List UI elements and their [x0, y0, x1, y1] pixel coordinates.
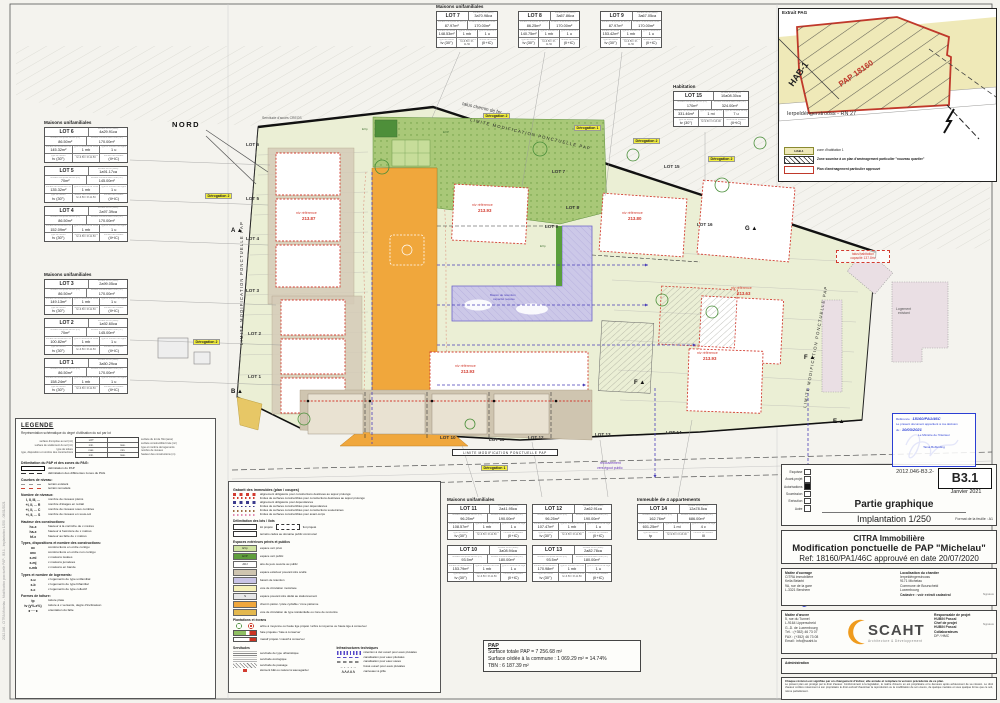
- plan-label: niv référence: [731, 286, 752, 290]
- table-value: 180.00m²: [489, 558, 526, 562]
- table-value: (II+IC): [561, 41, 578, 45]
- table-group-title: Immeuble de 4 appartements: [637, 497, 717, 502]
- pag-panel: HAB-1 PAP 18160 Ierpeldéngerstrooss - RN…: [778, 8, 997, 182]
- table-value: 145.00m²: [88, 179, 127, 183]
- table-group-title: Habitation: [673, 84, 749, 89]
- legend-symbol: oc: [21, 546, 45, 550]
- table-value: 1 u: [101, 300, 126, 304]
- table-value: 108.57m²: [449, 525, 472, 529]
- table-value: 3a08.94ca: [491, 549, 525, 553]
- limite-pap-boxed-label: LIMITE MODIFICATION PONCTUELLE PAP: [452, 449, 558, 456]
- legende-schema: surface d'emprise au sol (m²)surface de …: [21, 437, 210, 458]
- plan-label: EVp: [540, 244, 546, 248]
- legend-symbol: tp: [21, 599, 45, 603]
- legend-symbol: +I, II, ... R: [21, 503, 45, 507]
- table-value: 2a41.95ca: [491, 507, 525, 511]
- legende-panel: LEGENDE Représentation schématique du de…: [15, 418, 216, 699]
- table-value: 1 u: [587, 525, 610, 529]
- legend-symbol: x-u: [21, 578, 45, 582]
- table-value: 7 u: [725, 112, 747, 116]
- table-value: 170.00m²: [633, 24, 661, 28]
- lot-table: LOT 10surface du lot (ares)3a08.94casurf…: [447, 545, 527, 582]
- playground-green-square: [375, 120, 397, 137]
- table-value: 93.5m²: [534, 558, 571, 562]
- table-value: LOT 14: [639, 507, 678, 513]
- legend-symbol: [233, 514, 257, 516]
- doc-subtitle: Implantation 1/250: [834, 514, 954, 524]
- table-value: 1 mb: [475, 525, 498, 529]
- legend-symbol: x-mi: [21, 556, 45, 560]
- table-value: (II+IC): [101, 236, 126, 240]
- pap-summary: PAP Surface totale PAP = 7 256.68 m² Sur…: [483, 640, 641, 672]
- table-value: LOT 1: [46, 361, 87, 367]
- legend-item: EVPespace vert public: [233, 553, 436, 560]
- legend-symbol: [233, 510, 257, 512]
- table-value: LOT 9: [602, 14, 631, 20]
- table-value: (II+IC): [101, 197, 126, 201]
- table-value: 149.13m²: [46, 300, 71, 304]
- table-value: (II+IC): [101, 349, 126, 353]
- legend-symbol: [233, 501, 257, 504]
- table-value: tv (30°): [449, 576, 472, 580]
- legend-symbol: hc-x: [21, 525, 45, 529]
- legend-symbol: [233, 506, 257, 508]
- table-value: tv (30°): [438, 41, 455, 45]
- ministry-stamp: Référence : 18160/PA1/46C Le présent doc…: [892, 413, 976, 467]
- legend-item: EVpespace vert privé: [233, 545, 436, 552]
- phase-checkbox: [804, 476, 811, 483]
- table-value: 2a62.91ca: [576, 507, 610, 511]
- phase-checkbox: [804, 498, 811, 505]
- plan-label: 213.87: [302, 216, 316, 221]
- stamp-minister: Le Ministre de l'Intérieur: [896, 433, 972, 438]
- table-value: 1 mb: [475, 567, 498, 571]
- plan-label: vers égout public: [597, 466, 623, 470]
- table-value: 145.00m²: [88, 331, 127, 335]
- legend-symbol: [233, 531, 257, 537]
- table-value: 170m²: [675, 104, 710, 108]
- table-value: 1 u: [479, 32, 496, 36]
- plan-label: G ▲: [745, 226, 757, 232]
- table-group-title: Maisons unifamiliales: [44, 120, 128, 125]
- table-value: 1 u: [643, 32, 660, 36]
- table-value: (II+IC): [587, 576, 610, 580]
- table-value: 1 mb: [74, 380, 99, 384]
- plan-label: niv référence: [697, 351, 718, 355]
- lot-table: LOT 8surface du lot (ares)3a57.86casurfa…: [518, 11, 580, 49]
- legend-symbol: [21, 488, 45, 489]
- phase-checkbox: [804, 491, 811, 498]
- table-value: 1 mb: [74, 340, 99, 344]
- plan-reference-number: 2012.046-B3.2-: [896, 469, 934, 475]
- plan-label: EVP: [443, 130, 449, 134]
- table-value: hc-9.50 / hf-13.00: [665, 534, 688, 537]
- table-value: (II+IC): [725, 121, 747, 125]
- legend-symbol: [233, 623, 257, 629]
- legend-item: haie projetée / haie à conserver: [233, 630, 436, 636]
- lot-table-group-bottom: Maisons unifamilialesLOT 11surface du lo…: [447, 497, 617, 582]
- plan-label: LOT 16: [697, 222, 713, 227]
- plan-label: existant: [898, 311, 910, 315]
- lot-table: LOT 6surface du lot (ares)4a29.91casurfa…: [44, 127, 128, 164]
- table-group-title: Maisons unifamiliales: [447, 497, 617, 502]
- sheet-format: Format de la feuille : A1: [955, 517, 993, 521]
- plan-label: recouvrement: [600, 461, 621, 465]
- table-value: 100.82m²: [46, 340, 71, 344]
- legend-symbol: [21, 484, 45, 485]
- table-value: hc-6.50 / hf-11.50: [622, 41, 639, 47]
- legend-item: bassin de rétention: [233, 577, 436, 584]
- pag-title: Extrait PAG: [782, 10, 807, 15]
- stamp-date: 10/03/2021: [902, 427, 922, 432]
- table-value: 96.25m²: [534, 517, 571, 521]
- lot-table-group-top-center: Maisons unifamilialesLOT 7surface du lot…: [436, 4, 666, 48]
- notes-box: Chaque révision est signifiée par un cha…: [781, 677, 997, 700]
- legend-item: +I, II, ... Snombre de niveaux en sous-s…: [21, 513, 210, 517]
- table-value: tv (30°): [602, 41, 619, 45]
- plan-label: 213.93: [703, 356, 717, 361]
- table-value: 601.25m²: [639, 525, 662, 529]
- phase-row: Soumission: [784, 491, 811, 498]
- plan-label: A ▲: [231, 228, 243, 234]
- scaht-tagline: Architecture & Développement: [868, 639, 925, 643]
- table-value: 3a57.86ca: [552, 14, 578, 18]
- plan-label: LOT 6: [246, 142, 259, 147]
- legend-item: limites de surfaces constructibles pour …: [233, 513, 436, 516]
- table-value: 1 mb: [74, 188, 99, 192]
- lot-table: LOT 3surface du lot (ares)2a99.05casurfa…: [44, 279, 128, 316]
- table-value: LOT 8: [520, 14, 549, 20]
- project-title-box: CITRA Immobilière Modification ponctuell…: [781, 530, 997, 564]
- lot-table: LOT 11surface du lot (ares)2a41.95casurf…: [447, 504, 527, 541]
- table-value: 686.00m²: [679, 517, 716, 521]
- lot-table-group-immeuble: Immeuble de 4 appartementsLOT 14surface …: [637, 497, 717, 540]
- table-value: 12a78.5ca: [681, 507, 715, 511]
- plan-label: NORD: [172, 120, 200, 129]
- table-value: LOT 2: [46, 321, 87, 327]
- legend-symbol: I, II, III, ...: [21, 498, 45, 502]
- lot-table: LOT 5surface du lot (ares)1a91.17casurfa…: [44, 166, 128, 203]
- table-value: LOT 13: [534, 548, 573, 554]
- table-value: 324.00m²: [713, 104, 748, 108]
- table-value: 170.00m²: [88, 371, 127, 375]
- table-value: hc-6.50 / hf-11.50: [475, 576, 498, 579]
- legend-item: lot projetéîlot projeté: [233, 524, 436, 530]
- table-value: LOT 4: [46, 209, 87, 215]
- sheet-number: B3.1: [938, 468, 992, 489]
- legend-item: chemin piéton / piste cyclable / zone pi…: [233, 601, 436, 608]
- table-value: 70m²: [46, 331, 85, 335]
- legend-symbol: x-c: [21, 588, 45, 592]
- legend-item: ADJaire de jeux ouverte au public: [233, 561, 436, 568]
- legend-item: voie de circulation motorisée: [233, 585, 436, 592]
- legend-item: arbre à moyenne ou haute tige projeté / …: [233, 623, 436, 629]
- table-value: 1 mi: [700, 112, 722, 116]
- legend-item: x-mbx maisons en bande: [21, 566, 210, 570]
- plan-label: niv référence: [455, 364, 476, 368]
- table-value: (II+IC): [101, 388, 126, 392]
- table-value: 1 u: [101, 228, 126, 232]
- lot-table-group-left-top: Maisons unifamilialesLOT 6surface du lot…: [44, 120, 128, 242]
- table-value: LOT 7: [438, 14, 467, 20]
- plan-label: LOT 3: [246, 288, 259, 293]
- table-value: 3a70.98ca: [470, 14, 496, 18]
- table-value: 2a99.05ca: [90, 282, 126, 286]
- plan-label: LOT 11: [489, 437, 505, 442]
- author-box: Maître d'œuvre 5, rue du TunnelL-9164 Li…: [781, 610, 997, 654]
- legend-symbol: [276, 524, 300, 530]
- plan-label: capacité requise: [493, 297, 515, 301]
- table-value: hc-6.50 / hf-11.50: [458, 41, 475, 47]
- table-value: tv (30°): [46, 157, 71, 161]
- legend-symbol: [21, 466, 45, 471]
- legend-item: élément bâti ou naturel à sauvegarder: [233, 669, 333, 673]
- table-value: 148.53m²: [438, 32, 455, 36]
- legend-symbol: [233, 663, 257, 668]
- table-value: 86.50m²: [46, 292, 85, 296]
- table-value: hc-9.50 / hf-13.00: [700, 121, 722, 124]
- legend-symbol: x-mb: [21, 566, 45, 570]
- legend-symbol: ΛΛΛΛΛ: [337, 670, 361, 674]
- table-value: 87.97m²: [602, 24, 630, 28]
- phase-row: Exécution: [784, 498, 811, 505]
- table-value: 1a92.60ca: [90, 322, 126, 326]
- scaht-logo-mark: [848, 619, 866, 645]
- table-value: 190.00m²: [489, 517, 526, 521]
- table-value: 170.00m²: [551, 24, 579, 28]
- table-value: hc-6.50 / hf-11.50: [540, 41, 557, 47]
- table-value: hc-6.50 / hf-11.50: [74, 388, 99, 391]
- administration-box: Administration: [781, 658, 997, 674]
- table-value: 153.79m²: [449, 567, 472, 571]
- legend-symbol: [233, 637, 257, 643]
- table-value: hc-6.50 / hf-11.50: [74, 236, 99, 239]
- table-value: LOT 15: [675, 94, 712, 100]
- plan-label: LOT 14: [666, 430, 682, 435]
- legend-item: voie de circulation de type résidentiell…: [233, 609, 436, 616]
- legend-item: x-cx logements de type collectif: [21, 588, 210, 592]
- table-value: (II+IC): [101, 309, 126, 313]
- derogation-label: Dérogation 2: [483, 113, 510, 119]
- lot-table: LOT 14surface du lot (ares)12a78.5casurf…: [637, 504, 717, 541]
- pag-legend-item: HAB-1zone d'habitation 1: [784, 147, 992, 155]
- table-value: tv (30°): [46, 197, 71, 201]
- table-value: 1 mi: [665, 525, 688, 529]
- table-value: LOT 3: [46, 282, 87, 288]
- project-name: Modification ponctuelle de PAP "Michelau…: [782, 543, 996, 554]
- lot-table: LOT 12surface du lot (ares)2a62.91casurf…: [532, 504, 612, 541]
- table-value: 93.5m²: [449, 558, 486, 562]
- talus-habitation-note: talus/habitationcapacité 137.8m²: [836, 250, 890, 263]
- plan-sheet: NORDtalus chemin de ferServitude d'accès…: [0, 0, 1000, 703]
- table-value: 170.00m²: [88, 219, 127, 223]
- plan-label: LOT 12: [528, 435, 544, 440]
- plan-label: E ▲: [833, 419, 845, 425]
- legend-item: terrains cédés au domaine public communa…: [233, 531, 436, 537]
- table-value: 1 u: [101, 148, 126, 152]
- table-value: 1 u: [101, 340, 126, 344]
- table-value: 4 c: [692, 525, 715, 529]
- stamp-signatory: Taina Bofferding: [896, 445, 972, 450]
- legend-symbol: [337, 657, 361, 658]
- table-value: 1 mb: [74, 300, 99, 304]
- lot-table: LOT 13surface du lot (ares)2a82.78casurf…: [532, 545, 612, 582]
- legend-symbol: →-→-→: [337, 665, 361, 669]
- table-value: 1 mb: [540, 32, 557, 36]
- table-value: 1 u: [502, 525, 525, 529]
- table-value: tv (30°): [46, 309, 71, 313]
- table-value: 3a67.05ca: [634, 14, 660, 18]
- legend-symbol: x-b: [21, 583, 45, 587]
- table-value: (II+IC): [479, 41, 496, 45]
- legend-item: servitude de passage: [233, 663, 333, 668]
- table-value: 153.42m²: [602, 32, 619, 36]
- table-value: 162.76m²: [639, 517, 676, 521]
- gabarit-legend-panel: Gabarit des immeubles (plan / coupes) al…: [228, 481, 441, 693]
- phase-checklist: EsquisseAvant-projetAutorisationsSoumiss…: [784, 468, 811, 513]
- phase-row: Avant-projet: [784, 476, 811, 483]
- derogation-label: Dérogation 2: [205, 193, 232, 199]
- derogation-label: Dérogation 1: [481, 465, 508, 471]
- sheet-date: Janvier 2021: [940, 489, 992, 495]
- table-value: LOT 10: [449, 548, 488, 554]
- scaht-name: SCAHT: [868, 622, 925, 639]
- legend-item: →-→-→fossé ouvert pour eaux pluviales: [337, 665, 437, 669]
- plan-label: LOT 13: [595, 432, 611, 437]
- legend-symbol: x-mj: [21, 561, 45, 565]
- legend-item: servitude de type urbanistique: [233, 651, 333, 656]
- table-value: 1 mb: [74, 228, 99, 232]
- table-value: (II+IC): [587, 534, 610, 538]
- table-value: 96.25m²: [449, 517, 486, 521]
- legend-symbol: tv (y%-x%): [21, 604, 45, 608]
- derogation-label: Dérogation 2: [708, 156, 735, 162]
- legend-symbol: [233, 669, 257, 673]
- table-value: 1 u: [101, 188, 126, 192]
- stamp-reference: 18160/PA1/46C: [912, 416, 940, 421]
- legend-item: servitude écologique: [233, 657, 333, 662]
- table-value: 145.32m²: [46, 148, 71, 152]
- lot-table: LOT 7surface du lot (ares)3a70.98casurfa…: [436, 11, 498, 49]
- table-value: III: [692, 534, 715, 538]
- table-value: 1 mb: [74, 148, 99, 152]
- table-value: tv (30°): [46, 388, 71, 392]
- table-value: hc-6.50 / hf-11.50: [74, 309, 99, 312]
- table-value: 1 mb: [560, 567, 583, 571]
- table-value: 2a82.78ca: [576, 549, 610, 553]
- cadastre-note: Cadastre : voir extrait cadastral: [900, 593, 995, 597]
- plan-label: F ▲: [804, 355, 815, 361]
- phase-row: Autorisations: [784, 483, 811, 490]
- table-value: 180.00m²: [574, 558, 611, 562]
- table-value: tv (30°): [46, 349, 71, 353]
- phase-checkbox: [804, 505, 811, 512]
- plan-label: B ▲: [231, 389, 243, 395]
- lot-table-group-left-bottom: Maisons unifamilialesLOT 3surface du lot…: [44, 272, 128, 394]
- legend-item: ◄──►orientation du faîte: [21, 609, 210, 613]
- pag-legend-item: Plan d'aménagement particulier approuvé: [784, 166, 992, 174]
- pag-street-label: Ierpeldéngerstrooss - RN 27: [787, 111, 856, 117]
- legend-symbol: ha-x: [21, 530, 45, 534]
- plan-label: LOT 2: [248, 331, 261, 336]
- table-value: 170.98m²: [534, 567, 557, 571]
- plan-label: LIMITE MODIFICATION PONCTUELLE PAP: [239, 221, 244, 345]
- table-value: 86.50m²: [46, 371, 85, 375]
- project-client: CITRA Immobilière: [782, 534, 996, 543]
- plan-label: LOT 1: [248, 374, 261, 379]
- table-value: 331.46m²: [675, 112, 697, 116]
- plan-label: niv référence: [472, 203, 493, 207]
- table-value: 1 mb: [560, 525, 583, 529]
- table-value: 1 u: [587, 567, 610, 571]
- table-value: 86.50m²: [46, 140, 85, 144]
- table-value: 170.00m²: [469, 24, 497, 28]
- table-value: 1a91.17ca: [90, 170, 126, 174]
- table-value: LOT 12: [534, 507, 573, 513]
- project-ref: Ref: 18160/PA1/46C approuvé en date 20/0…: [782, 554, 996, 563]
- plan-label: F ▲: [634, 380, 645, 386]
- pap-line1: Surface totale PAP = 7 256.68 m²: [488, 649, 636, 656]
- table-value: 1 u: [502, 567, 525, 571]
- admin-heading: Administration: [785, 661, 993, 665]
- legend-symbol: [233, 524, 257, 530]
- legende-subtitle: Représentation schématique du degré d'ut…: [21, 431, 210, 435]
- table-value: 170.00m²: [88, 140, 127, 144]
- scaht-logo: SCAHT Architecture & Développement: [848, 619, 925, 645]
- plan-label: EVp: [362, 127, 368, 131]
- table-group-title: Maisons unifamiliales: [436, 4, 666, 9]
- margin-file-note: 2012.046 - CITRA Michelau - Modification…: [2, 240, 6, 640]
- table-value: tp: [639, 534, 662, 538]
- derogation-label: Dérogation 2: [633, 138, 660, 144]
- table-value: tv (30°): [520, 41, 537, 45]
- phase-checkbox: [804, 483, 811, 490]
- phase-row: Esquisse: [784, 469, 811, 476]
- pag-legend-item: Zone soumise à un plan d'aménagement par…: [784, 156, 992, 164]
- lot-table-group-habitation: HabitationLOT 15surface du lot (ares)10a…: [673, 84, 749, 127]
- plan-label: niv référence: [296, 211, 317, 215]
- legend-symbol: [21, 473, 45, 475]
- plan-label: Servitude d'accès CREOS: [262, 116, 302, 120]
- table-value: 70m²: [46, 179, 85, 183]
- legend-item: ΛΛΛΛΛcaniveaux à grille: [337, 670, 437, 674]
- table-value: tv (30°): [46, 236, 71, 240]
- legend-symbol: [337, 651, 361, 656]
- plan-label: LOT 4: [246, 236, 259, 241]
- derogation-label: Dérogation 1: [574, 125, 601, 131]
- table-value: (II+IC): [502, 576, 525, 580]
- table-value: 135.32m²: [46, 188, 71, 192]
- legend-section-heading: Délimitation du PAP et des zones du PAG:: [21, 461, 210, 465]
- legend-item: délimitation des différentes zones du PA…: [21, 472, 210, 475]
- gabarit-title: Gabarit des immeubles (plan / coupes): [233, 488, 436, 492]
- lot-table: LOT 1surface du lot (ares)3a50.29casurfa…: [44, 358, 128, 395]
- lot-table: LOT 15surface du lot (ares)10a08.30casur…: [673, 91, 749, 128]
- legend-symbol: [337, 661, 361, 662]
- table-value: (II+IC): [502, 534, 525, 538]
- table-value: tv (30°): [449, 534, 472, 538]
- legend-symbol: [233, 630, 257, 636]
- table-value: 86.25m²: [520, 24, 548, 28]
- pap-line2: Surface cédée à la commune : 1 069.29 m²…: [488, 656, 636, 663]
- legend-symbol: ◄──►: [21, 609, 45, 613]
- plan-label: LOT 10: [440, 435, 456, 440]
- table-value: 140.75m²: [520, 32, 537, 36]
- plan-label: LOT 8: [566, 205, 579, 210]
- legend-symbol: [233, 651, 257, 656]
- plan-label: 213.80: [628, 216, 642, 221]
- legende-title: LEGENDE: [21, 423, 210, 429]
